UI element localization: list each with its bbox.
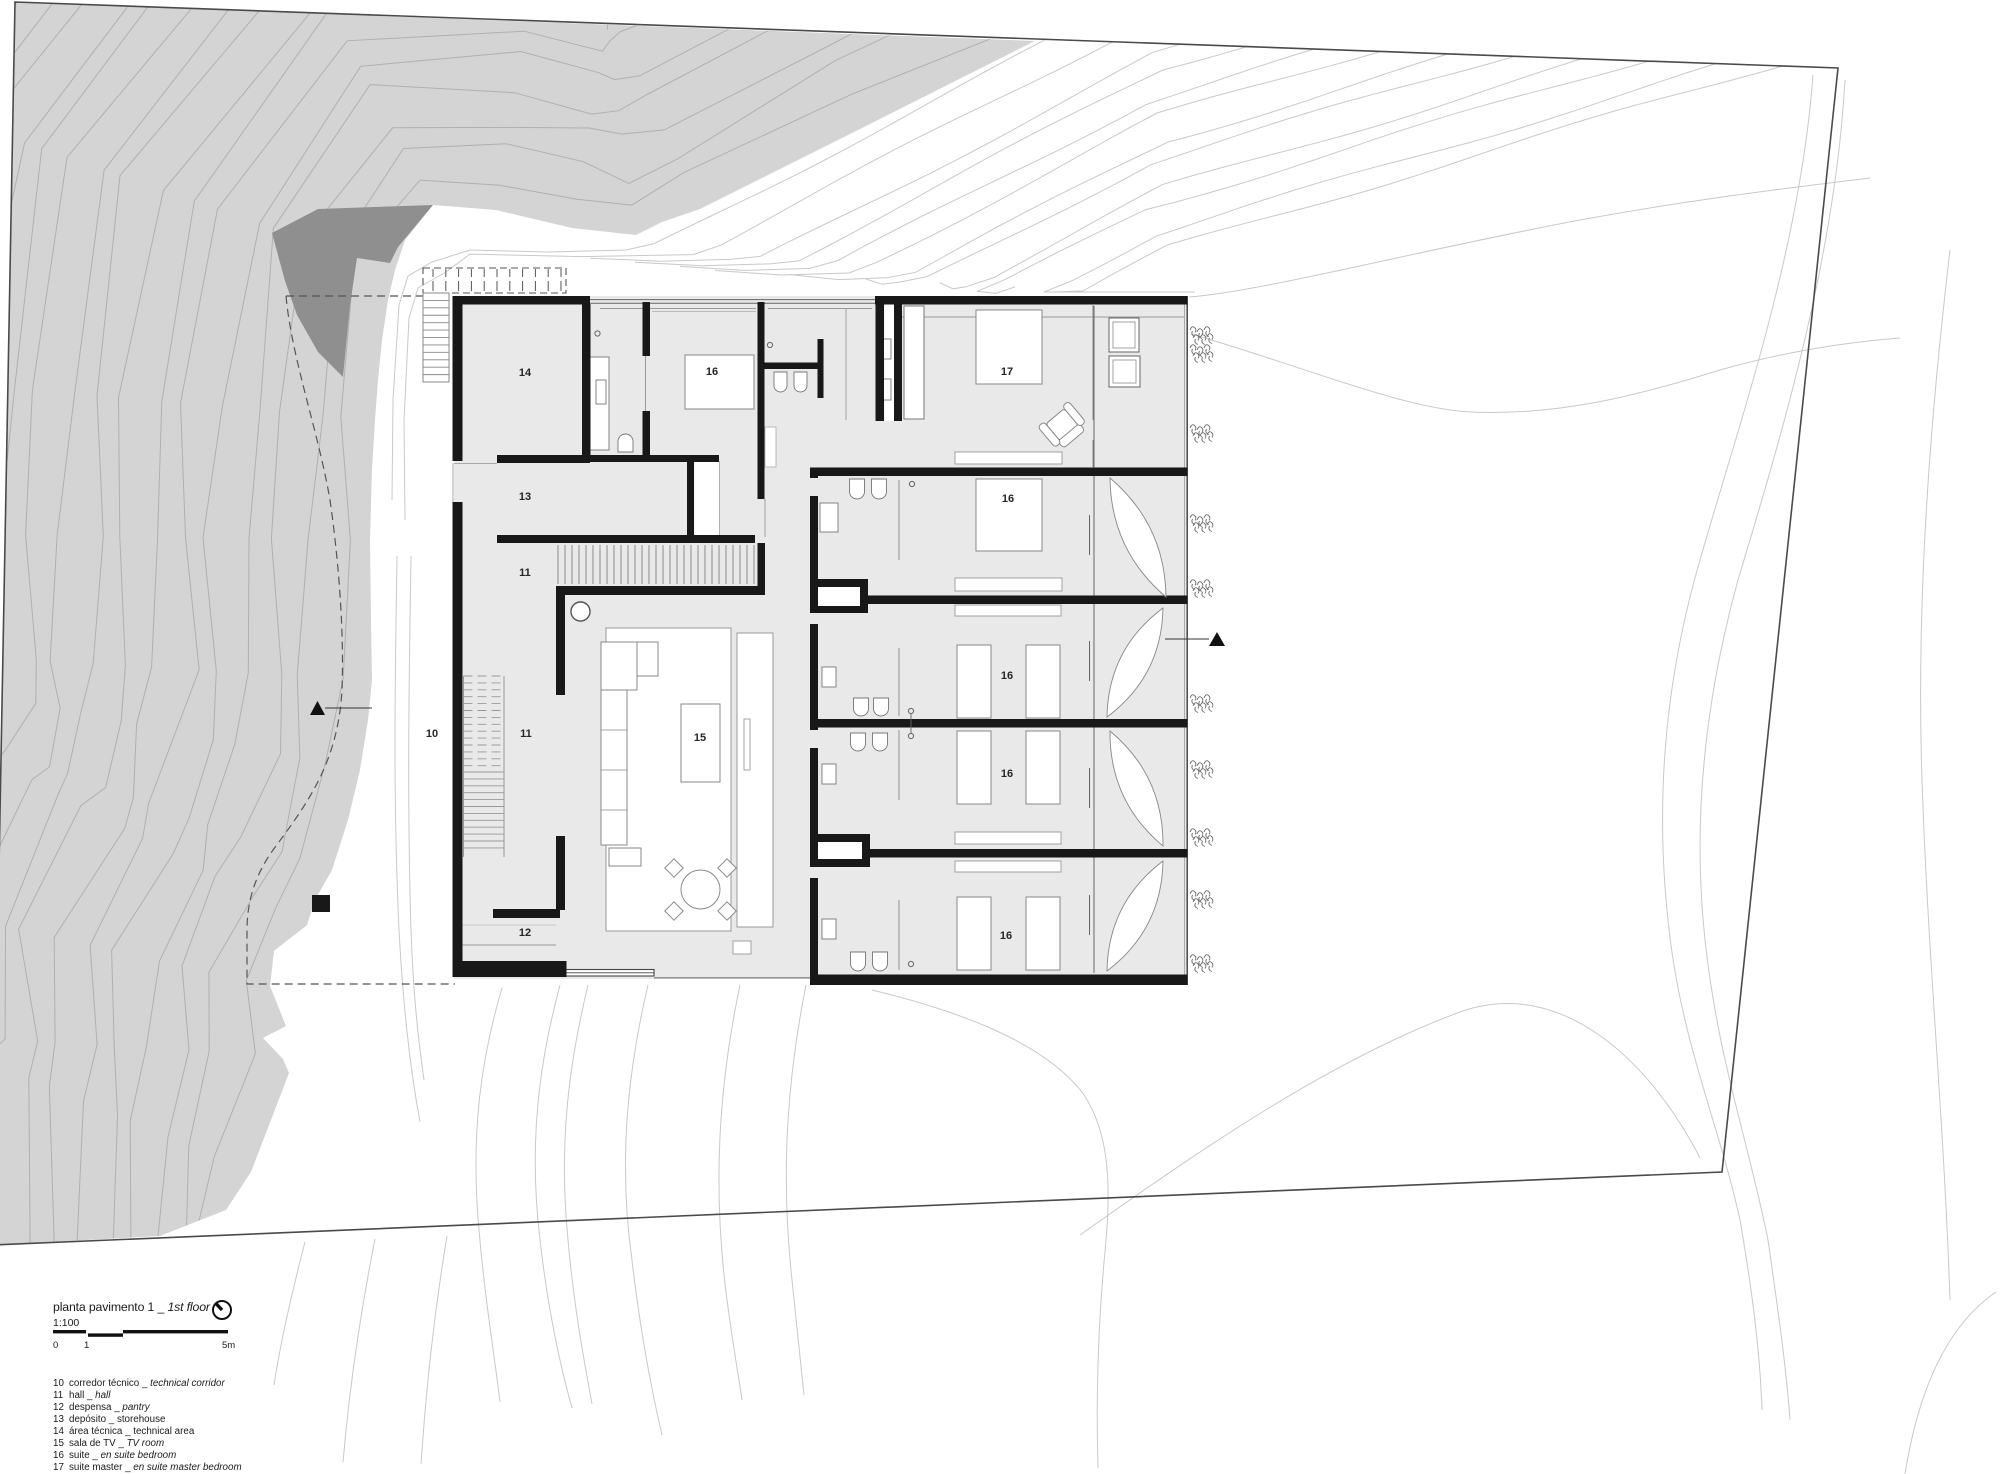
svg-text:suite master _ en suite master: suite master _ en suite master bedroom <box>69 1462 242 1473</box>
svg-text:despensa _ pantry: despensa _ pantry <box>69 1402 151 1413</box>
svg-text:13: 13 <box>519 491 531 503</box>
svg-text:11: 11 <box>53 1390 63 1401</box>
svg-text:16: 16 <box>53 1450 64 1461</box>
svg-text:0: 0 <box>53 1340 58 1351</box>
svg-text:16: 16 <box>706 366 718 378</box>
svg-text:área técnica _ technical area: área técnica _ technical area <box>69 1426 195 1437</box>
svg-text:12: 12 <box>53 1402 64 1413</box>
svg-text:1:100: 1:100 <box>53 1317 79 1329</box>
svg-text:11: 11 <box>519 567 531 579</box>
svg-text:14: 14 <box>53 1426 64 1437</box>
svg-text:12: 12 <box>519 927 531 939</box>
svg-text:planta pavimento 1 _ 1st floor: planta pavimento 1 _ 1st floor <box>53 1300 211 1314</box>
svg-text:16: 16 <box>1000 930 1012 942</box>
svg-text:17: 17 <box>1001 366 1013 378</box>
svg-text:17: 17 <box>53 1462 64 1473</box>
svg-text:suite _ en suite bedroom: suite _ en suite bedroom <box>69 1450 176 1461</box>
svg-text:hall _ hall: hall _ hall <box>69 1390 111 1401</box>
svg-text:corredor técnico _ technical c: corredor técnico _ technical corridor <box>69 1378 225 1389</box>
svg-text:14: 14 <box>519 367 532 379</box>
svg-text:13: 13 <box>53 1414 64 1425</box>
svg-text:11: 11 <box>520 728 532 740</box>
svg-text:10: 10 <box>53 1378 64 1389</box>
svg-text:16: 16 <box>1001 670 1013 682</box>
svg-text:15: 15 <box>53 1438 64 1449</box>
svg-text:5m: 5m <box>222 1340 235 1351</box>
svg-text:16: 16 <box>1002 493 1014 505</box>
svg-text:sala de TV _ TV room: sala de TV _ TV room <box>69 1438 164 1449</box>
svg-text:10: 10 <box>426 728 438 740</box>
svg-text:1: 1 <box>84 1340 89 1351</box>
svg-text:15: 15 <box>694 732 706 744</box>
svg-text:depósito _ storehouse: depósito _ storehouse <box>69 1414 166 1425</box>
svg-text:16: 16 <box>1001 768 1013 780</box>
